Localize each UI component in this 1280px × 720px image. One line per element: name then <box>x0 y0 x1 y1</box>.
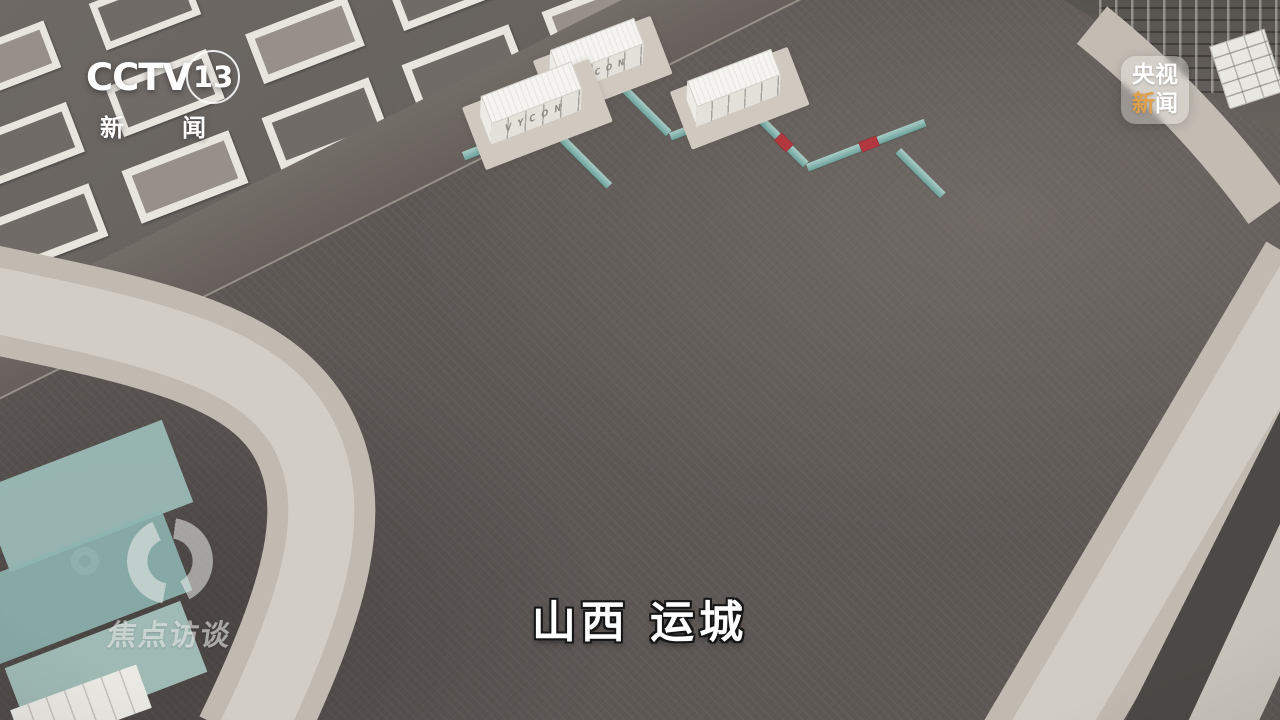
program-logo-icon <box>116 507 224 615</box>
channel-number: 13 <box>193 60 233 94</box>
cctv13-channel-logo: CCTV 13 新 闻 <box>86 50 240 143</box>
channel-name-char: 闻 <box>182 108 206 143</box>
badge-line1: 央视 <box>1132 61 1178 90</box>
program-watermark-title: 焦点访谈 <box>93 612 247 654</box>
cctv-wordmark: CCTV <box>86 56 190 99</box>
cctv-news-app-badge: 央视 新闻 <box>1121 56 1189 124</box>
badge-line2: 新闻 <box>1132 90 1178 119</box>
news-video-frame: VYCONVYCON CCTV 13 新 闻 央视 新闻 焦点访谈 山西 运城 <box>0 0 1280 720</box>
channel-name-char: 新 <box>100 108 124 143</box>
badge-char: 闻 <box>1155 91 1178 117</box>
program-watermark: 焦点访谈 <box>96 518 244 654</box>
channel-number-circle: 13 <box>186 50 240 104</box>
channel-name: 新 闻 <box>100 108 206 143</box>
badge-accent-char: 新 <box>1132 91 1155 117</box>
location-caption: 山西 运城 <box>532 586 748 650</box>
